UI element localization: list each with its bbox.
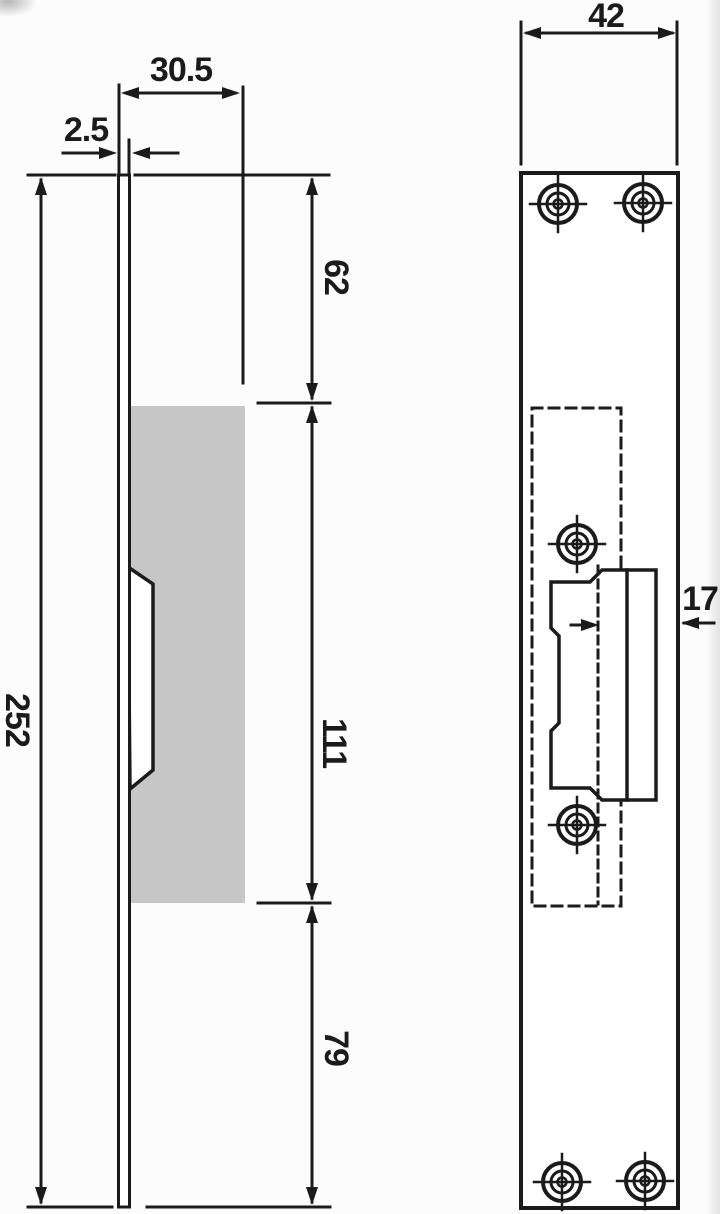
dim-252: [35, 177, 47, 1205]
side-view: [28, 85, 330, 1207]
arrowhead-up: [35, 177, 47, 195]
arrowhead-right: [222, 87, 240, 99]
dim-label-body-section: 111: [317, 718, 351, 768]
faceplate-side-profile: [119, 175, 130, 1207]
dim-label-plate-width: 42: [588, 0, 624, 33]
dim-42: [521, 22, 677, 164]
arrowhead-down: [306, 383, 318, 401]
arrowhead-left: [121, 87, 139, 99]
dim-label-bottom-section: 79: [319, 1030, 353, 1066]
dim-30-5: [119, 85, 243, 383]
dim-label-top-section: 62: [319, 259, 353, 295]
scan-smudge-artifact: [0, 0, 40, 18]
drawing-canvas: 30.5 2.5 252 62 111 79 42 17: [0, 0, 720, 1214]
scan-edge-artifact: [706, 0, 720, 1214]
dim-label-body-depth: 30.5: [150, 53, 212, 87]
arrowhead-down: [306, 883, 318, 901]
strike-plate-drawing: [0, 0, 720, 1214]
latch-cavity-outline: [551, 570, 656, 800]
dim-label-plate-thickness: 2.5: [64, 113, 108, 147]
dim-label-plate-height: 252: [0, 693, 34, 747]
arrowhead-down: [35, 1187, 47, 1205]
arrowhead-left: [132, 147, 150, 159]
arrowhead-down: [306, 1187, 318, 1205]
arrowhead-up: [306, 905, 318, 923]
arrowhead-left: [523, 27, 541, 39]
keeper-bump-profile: [128, 567, 153, 789]
arrowhead-up: [306, 405, 318, 423]
arrowhead-right: [658, 27, 676, 39]
arrowhead-up: [306, 177, 318, 195]
arrowhead-left: [681, 617, 699, 629]
